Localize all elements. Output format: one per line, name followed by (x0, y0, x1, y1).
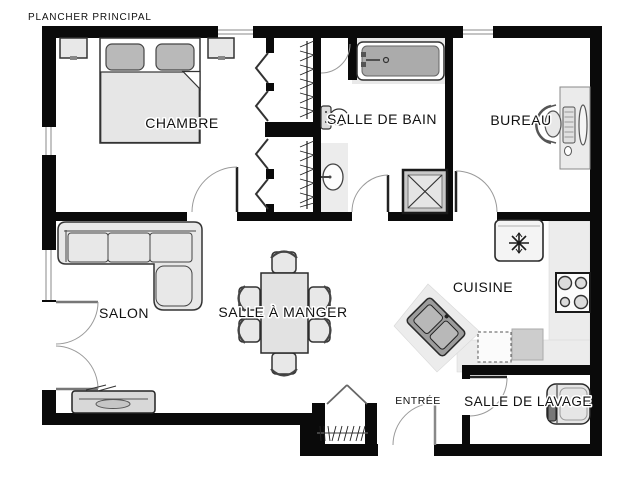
bathroom-door (352, 175, 388, 212)
room-label-salon: SALON (99, 305, 149, 321)
tub-tap (361, 52, 366, 57)
wall-closet-stub1 (266, 38, 274, 53)
wall-laundry-top (462, 365, 590, 375)
desk (560, 87, 590, 169)
dining-chair (309, 318, 331, 343)
wall-hall-b (237, 212, 352, 221)
nightstand-right (208, 38, 234, 60)
bureau-door (456, 171, 497, 212)
wall-laundry-stub-top (462, 375, 470, 379)
wall-closet-stub3 (266, 169, 274, 179)
burner-icon (561, 298, 570, 307)
window-bedroom-top (218, 26, 253, 38)
bifold-door-icon (256, 91, 268, 121)
room-label-salle-a-manger: SALLE À MANGER (218, 304, 347, 320)
wall-entry-closet-left (312, 403, 325, 444)
wall-laundry-stub-bottom (462, 415, 470, 444)
entry-closet-doors (327, 385, 367, 404)
burner-icon (559, 277, 572, 290)
room-label-cuisine: CUISINE (453, 279, 513, 295)
pillow (106, 44, 144, 70)
room-label-bureau: BUREAU (490, 112, 551, 128)
stove (556, 273, 590, 312)
refrigerator (495, 220, 543, 261)
dining-chair (239, 318, 261, 343)
entry-door (378, 403, 435, 456)
plan-title: PLANCHER PRINCIPAL (28, 12, 152, 23)
wall-right (590, 26, 602, 456)
burner-icon (575, 296, 588, 309)
floor-plan-drawing: PLANCHER PRINCIPAL CHAMBRE SALLE DE BAIN… (0, 0, 640, 480)
burner-icon (576, 278, 587, 289)
wall-entry-closet-right (365, 403, 377, 444)
wall-hall-a (56, 212, 187, 221)
room-label-salle-de-bain: SALLE DE BAIN (327, 111, 437, 127)
dining-chair (271, 252, 297, 274)
snowflake-icon (509, 233, 529, 253)
wall-bottom-right (300, 444, 602, 456)
blanket (101, 72, 200, 143)
wall-top (42, 26, 602, 38)
shower (403, 170, 447, 213)
wall-closet-stub2 (266, 83, 274, 91)
bathtub (357, 42, 444, 80)
room-label-chambre: CHAMBRE (145, 115, 219, 131)
nightstand-left (60, 38, 87, 60)
patio-double-doors (42, 302, 98, 390)
window-left-lower (42, 250, 56, 300)
bedroom-door (192, 167, 237, 212)
wall-bathroom-left (313, 38, 321, 212)
tub-tap (361, 62, 366, 67)
wall-tub-nook (348, 38, 357, 80)
window-left-upper (42, 127, 56, 155)
window-bureau-top (463, 26, 493, 38)
pillow (156, 44, 194, 70)
kitchen-cabinet (512, 329, 543, 360)
monitor-icon (579, 105, 587, 145)
dining-chair (271, 353, 297, 376)
tv-icon (96, 400, 130, 409)
room-label-entree: ENTRÉE (395, 394, 441, 407)
wall-closet-divider (265, 122, 315, 137)
sectional-sofa (58, 222, 202, 310)
wall-bottom-left (42, 413, 312, 425)
room-label-salle-de-lavage: SALLE DE LAVAGE (464, 394, 592, 409)
dishwasher (478, 332, 511, 362)
mouse-icon (565, 147, 572, 156)
bifold-door-icon (256, 139, 268, 169)
bathroom-nook-door-arc (321, 44, 350, 73)
floor-plan: PLANCHER PRINCIPAL CHAMBRE SALLE DE BAIN… (0, 0, 640, 480)
keyboard-icon (563, 107, 575, 143)
bifold-door-icon (256, 53, 268, 83)
